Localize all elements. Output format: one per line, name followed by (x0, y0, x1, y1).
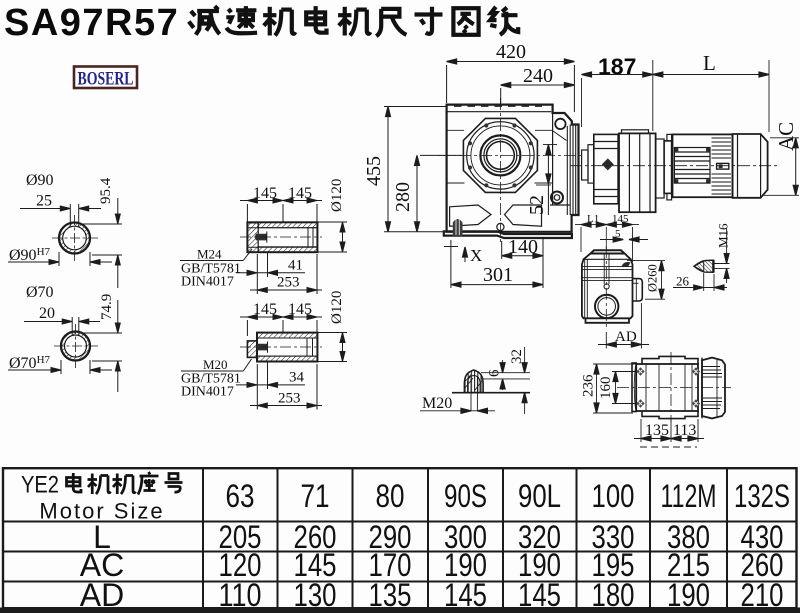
svg-text:M20: M20 (422, 395, 452, 412)
svg-text:180: 180 (592, 577, 635, 613)
svg-text:210: 210 (741, 577, 784, 613)
svg-text:301: 301 (483, 264, 513, 286)
svg-text:135: 135 (369, 577, 412, 613)
svg-text:52: 52 (526, 195, 548, 215)
svg-text:74.9: 74.9 (99, 294, 115, 320)
svg-text:236: 236 (581, 374, 597, 397)
svg-text:63: 63 (226, 478, 255, 514)
svg-text:187: 187 (598, 54, 636, 80)
svg-text:145: 145 (444, 577, 487, 613)
svg-text:M24: M24 (197, 247, 222, 262)
svg-text:145: 145 (518, 577, 561, 613)
svg-text:420: 420 (496, 41, 526, 63)
svg-text:130: 130 (294, 577, 337, 613)
svg-text:90L: 90L (518, 478, 561, 514)
svg-text:SA97R57: SA97R57 (4, 2, 179, 44)
svg-text:Ø120: Ø120 (329, 291, 345, 324)
svg-text:34: 34 (289, 370, 305, 386)
svg-text:Ø90: Ø90 (26, 172, 54, 189)
svg-text:240: 240 (523, 65, 553, 87)
svg-text:100: 100 (592, 478, 635, 514)
svg-text:160: 160 (598, 377, 614, 400)
svg-text:32: 32 (509, 349, 525, 364)
svg-text:113: 113 (673, 422, 696, 439)
svg-text:25: 25 (36, 193, 52, 210)
svg-text:95.4: 95.4 (98, 177, 114, 204)
svg-text:Ø120: Ø120 (329, 179, 345, 212)
svg-text:41: 41 (288, 258, 303, 274)
svg-text:280: 280 (392, 182, 414, 212)
svg-text:Ø260: Ø260 (646, 264, 660, 292)
svg-text:253: 253 (278, 391, 301, 407)
svg-text:M20: M20 (203, 357, 228, 372)
svg-text:253: 253 (277, 275, 300, 291)
svg-text:110: 110 (219, 577, 262, 613)
svg-text:80: 80 (376, 478, 405, 514)
svg-text:DIN4017: DIN4017 (181, 275, 234, 290)
svg-text:BOSERL: BOSERL (78, 69, 134, 90)
svg-text:L: L (703, 51, 716, 75)
svg-text:DIN4017: DIN4017 (181, 385, 234, 400)
svg-text:X: X (470, 246, 482, 265)
svg-text:20: 20 (39, 305, 55, 322)
svg-text:26: 26 (676, 274, 690, 289)
svg-text:190: 190 (667, 577, 710, 613)
svg-text:71: 71 (301, 478, 330, 514)
svg-text:132S: 132S (734, 478, 790, 514)
svg-text:AD: AD (80, 577, 124, 613)
svg-text:YE2: YE2 (21, 472, 59, 499)
svg-text:M16: M16 (716, 223, 731, 248)
svg-text:112M: 112M (661, 478, 717, 514)
svg-text:Ø70: Ø70 (26, 284, 54, 301)
svg-text:90S: 90S (444, 478, 487, 514)
svg-text:455: 455 (363, 156, 385, 186)
